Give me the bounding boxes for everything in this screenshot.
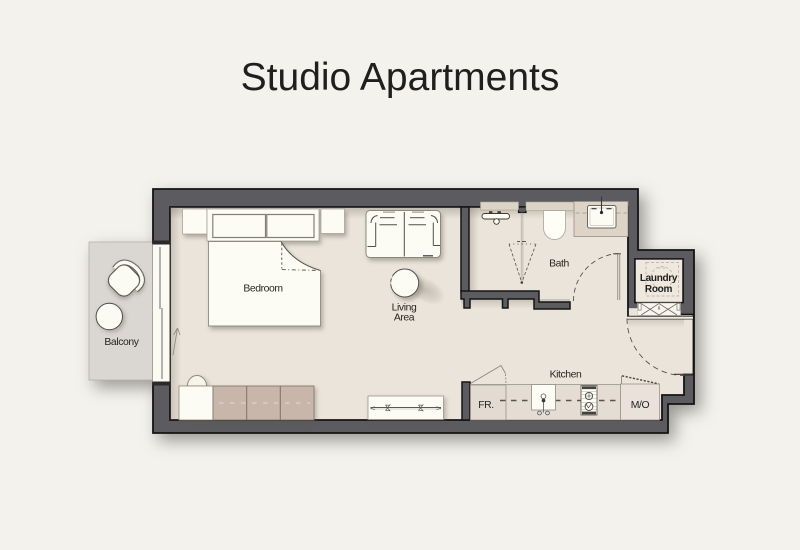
svg-text:Balcony: Balcony	[104, 337, 139, 348]
svg-text:Kitchen: Kitchen	[550, 370, 582, 381]
svg-text:Laundry: Laundry	[640, 273, 678, 284]
svg-text:Area: Area	[394, 313, 415, 324]
svg-text:Studio Apartments: Studio Apartments	[241, 56, 560, 99]
svg-text:Bath: Bath	[549, 259, 569, 270]
svg-text:Room: Room	[645, 284, 673, 295]
svg-text:Bedroom: Bedroom	[243, 284, 282, 295]
svg-text:M/O: M/O	[631, 400, 650, 411]
svg-text:FR.: FR.	[478, 400, 494, 411]
